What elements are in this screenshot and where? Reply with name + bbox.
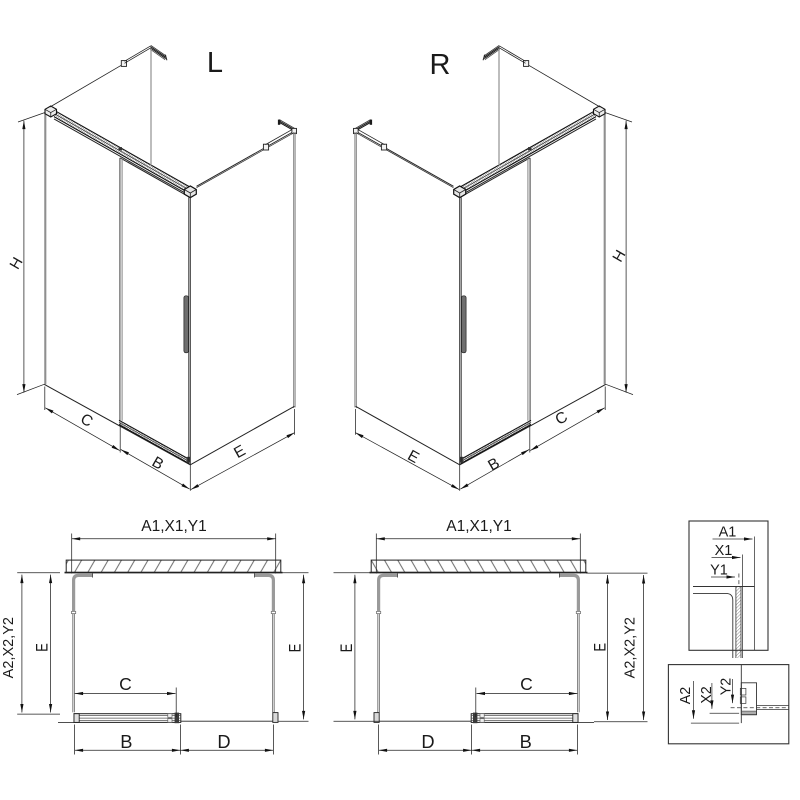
- svg-text:E: E: [592, 643, 610, 652]
- svg-text:A1,X1,Y1: A1,X1,Y1: [446, 518, 512, 535]
- svg-text:A2: A2: [678, 687, 694, 705]
- svg-text:E: E: [339, 644, 357, 653]
- svg-text:D: D: [217, 731, 230, 752]
- svg-text:E: E: [34, 643, 52, 652]
- svg-text:E: E: [405, 447, 422, 467]
- svg-text:Y2: Y2: [718, 678, 734, 696]
- svg-text:D: D: [421, 731, 434, 752]
- svg-text:A1: A1: [719, 525, 737, 541]
- svg-text:L: L: [207, 47, 223, 79]
- svg-text:B: B: [149, 454, 166, 474]
- svg-text:C: C: [119, 674, 132, 694]
- svg-text:C: C: [520, 674, 533, 694]
- svg-text:X1: X1: [715, 543, 733, 559]
- svg-text:Y1: Y1: [710, 563, 728, 579]
- svg-text:R: R: [430, 49, 451, 81]
- svg-text:A2,X2,Y2: A2,X2,Y2: [623, 617, 639, 678]
- svg-text:B: B: [120, 731, 132, 752]
- svg-text:X2: X2: [699, 686, 715, 704]
- svg-text:A1,X1,Y1: A1,X1,Y1: [141, 518, 207, 535]
- svg-text:E: E: [287, 644, 305, 653]
- svg-text:B: B: [520, 731, 532, 752]
- svg-text:B: B: [485, 455, 502, 475]
- svg-text:A2,X2,Y2: A2,X2,Y2: [1, 617, 17, 678]
- svg-text:C: C: [552, 408, 570, 428]
